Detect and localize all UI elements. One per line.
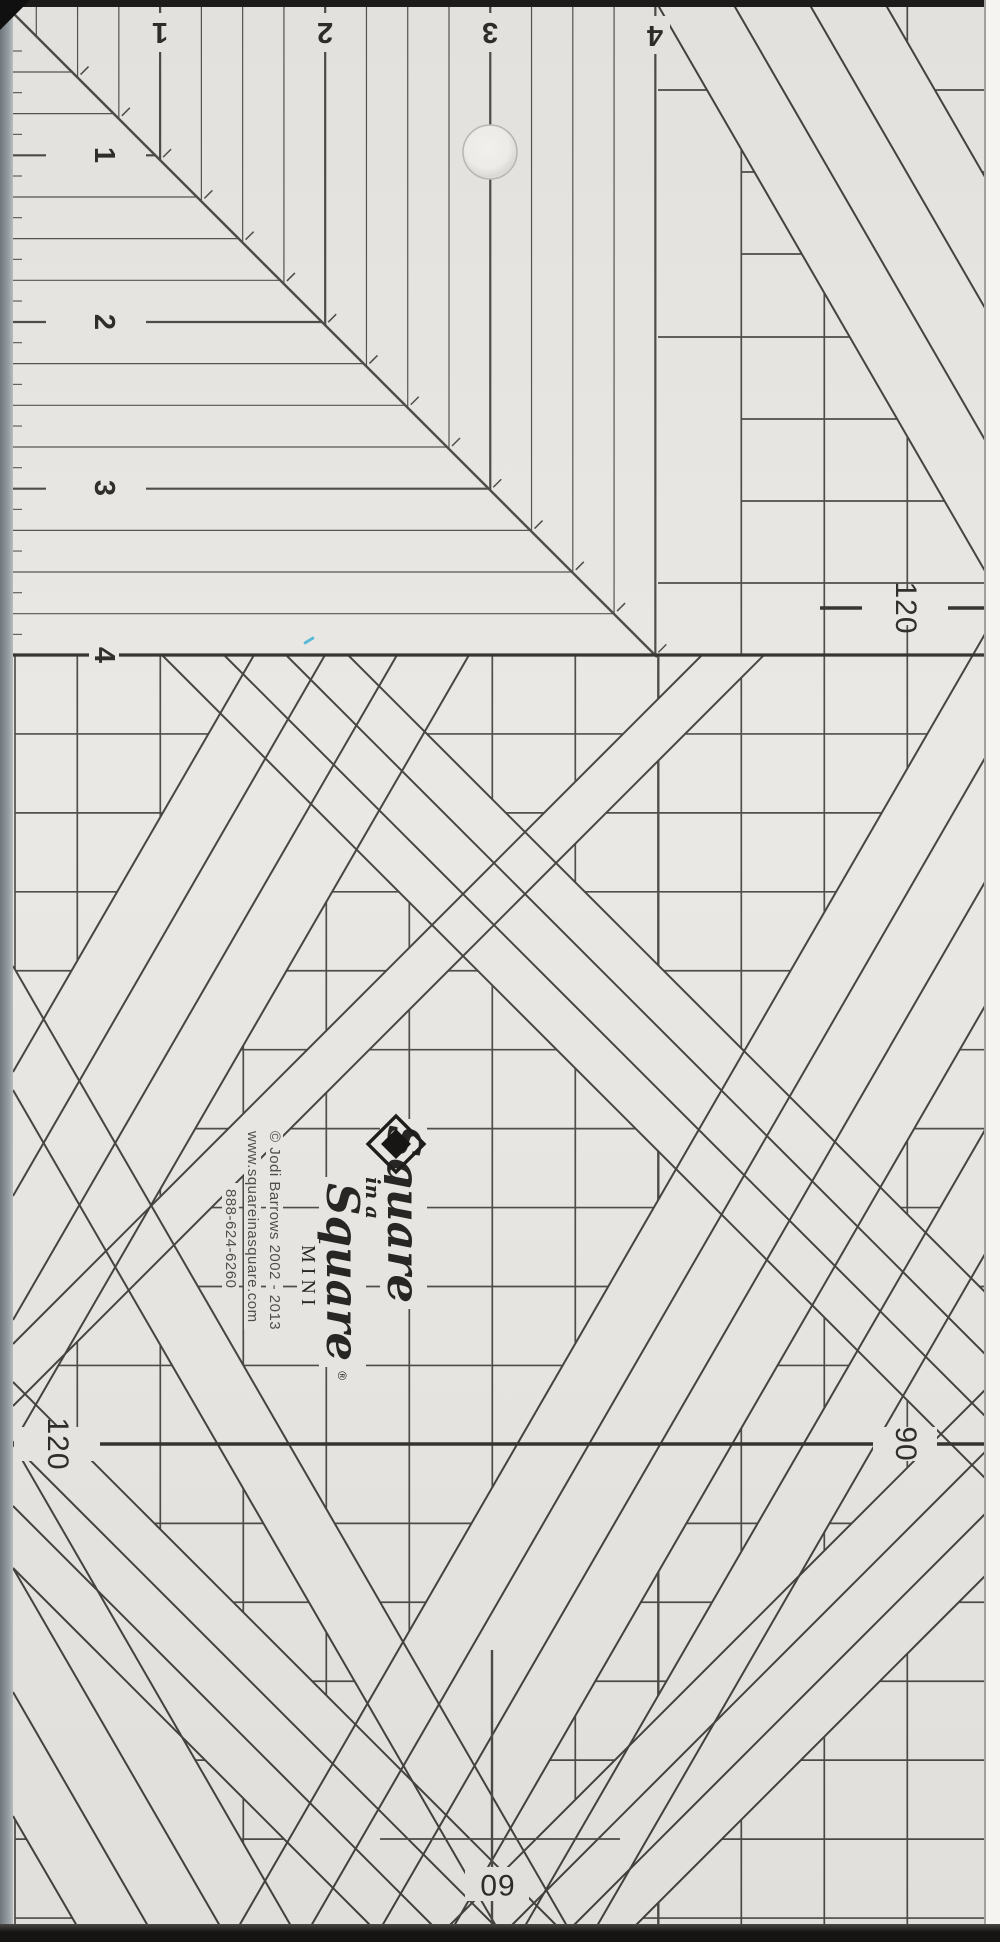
left-scale-label-1: 1 [89, 138, 119, 172]
left-scale-label-4: 4 [89, 638, 119, 672]
top-scale-label-1: 1 [145, 13, 175, 51]
brand-block: Square in a Square® MINI © Jodi Barrows … [167, 1113, 427, 1453]
website-text: www.squareinasquare.com [244, 1125, 261, 1329]
angle-marker-120-left: 120 [14, 1427, 100, 1461]
top-scale-label-3: 3 [475, 13, 505, 51]
registered-trademark: ® [337, 1371, 349, 1380]
top-scale-label-2: 2 [310, 13, 340, 51]
square-in-a-square-mini-quilting-ruler: 1 2 3 4 1 2 3 4 120 120 90 60 Square in … [0, 0, 1000, 1942]
brand-word-square-2: Square [319, 1177, 366, 1367]
hanging-hole [463, 125, 517, 179]
phone-text: 888-624-6260 [222, 1183, 239, 1294]
left-scale-label-2: 2 [89, 305, 119, 339]
scan-corner-shadow [0, 0, 30, 30]
ruler-top-edge [0, 0, 1000, 7]
scan-right-edge-strip [984, 0, 1000, 1942]
angle-marker-60-bottom: 60 [465, 1867, 529, 1901]
left-scale-label-3: 3 [89, 471, 119, 505]
product-model-mini: MINI [297, 1239, 319, 1317]
ruler-left-bevel-edge [0, 0, 13, 1942]
ruler-bottom-edge [0, 1924, 1000, 1942]
top-scale-label-4: 4 [640, 16, 670, 54]
diamond-logo [365, 1113, 427, 1175]
ruler-engraving-artwork [0, 0, 1000, 1942]
angle-marker-120-right: 120 [862, 591, 948, 625]
copyright-text: © Jodi Barrows 2002 - 2013 [266, 1125, 283, 1336]
angle-marker-90-right: 90 [873, 1427, 937, 1461]
